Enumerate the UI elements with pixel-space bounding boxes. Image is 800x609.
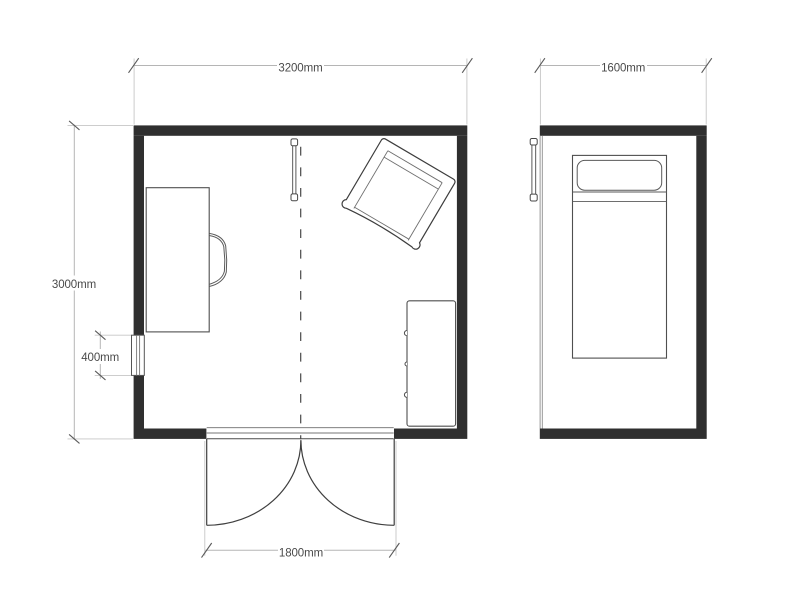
svg-text:400mm: 400mm [81, 352, 119, 364]
svg-text:3000mm: 3000mm [52, 279, 96, 291]
svg-text:1600mm: 1600mm [601, 63, 645, 75]
svg-text:3200mm: 3200mm [278, 63, 322, 75]
svg-text:1800mm: 1800mm [279, 548, 323, 560]
